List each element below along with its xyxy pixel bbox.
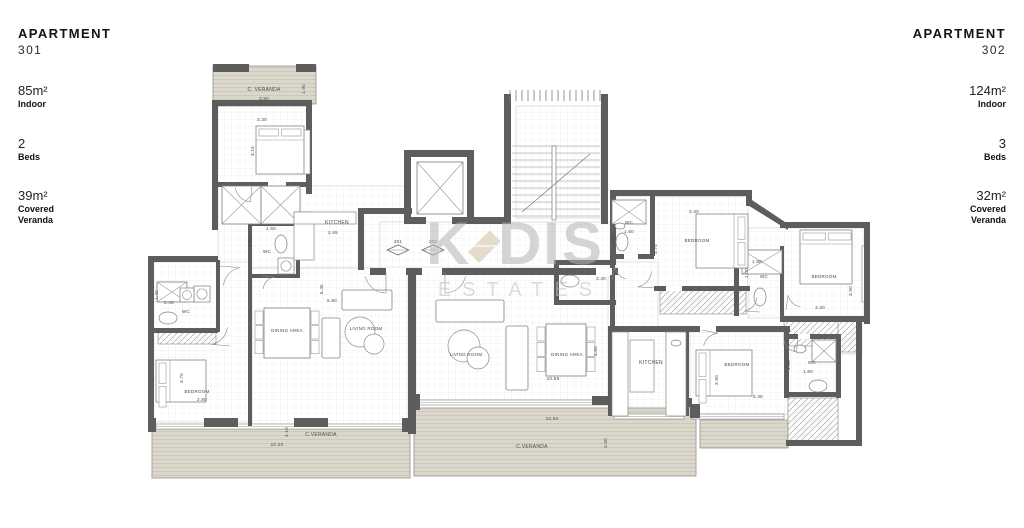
plan-label: 2.60 <box>247 237 252 247</box>
plan-label: 2.50 <box>611 235 616 245</box>
stat-label: Indoor <box>18 99 168 110</box>
stat-beds: 2 Beds <box>18 136 168 163</box>
chair <box>537 327 545 341</box>
counter <box>612 332 628 416</box>
plan-label: WC <box>625 220 633 225</box>
room-floor <box>612 262 658 328</box>
plan-label: 3.40 <box>596 276 606 281</box>
apartment-number: 302 <box>856 43 1006 57</box>
plan-label: C. VERANDA <box>247 87 280 93</box>
plan-label: 3.30 <box>815 305 825 310</box>
plan-label: 3.00 <box>603 438 608 448</box>
door-opening <box>596 268 612 275</box>
wc-fixture <box>671 340 681 346</box>
wall <box>294 418 328 427</box>
coffee-table <box>467 347 489 369</box>
plan-label: 1.60 <box>786 360 791 370</box>
chair <box>587 327 595 341</box>
bed-pillow <box>829 233 852 240</box>
dining-table <box>264 308 310 358</box>
plan-label: WC <box>182 309 190 314</box>
plan-label: 3.50 <box>593 346 598 356</box>
wardrobe <box>660 290 746 314</box>
stat-label: Beds <box>856 152 1006 163</box>
wall <box>404 150 474 157</box>
wall <box>467 150 474 224</box>
door-opening <box>386 268 406 275</box>
wall <box>212 100 218 230</box>
wall <box>554 300 616 305</box>
stat-value: 124m² <box>856 83 1006 98</box>
plan-label: KITCHEN <box>325 220 349 226</box>
plan-label: 1.40 <box>154 290 159 300</box>
plan-label: 10.50 <box>546 416 559 421</box>
wall <box>610 190 752 196</box>
door-opening <box>666 286 682 291</box>
plan-label: 4.10 <box>284 427 289 437</box>
wall <box>786 440 862 446</box>
counter <box>630 340 654 392</box>
wall <box>404 217 426 224</box>
plan-label: 1.80 <box>803 369 813 374</box>
plan-label: DINING AREA <box>551 352 583 357</box>
plan-label: WC <box>263 249 271 254</box>
wall <box>412 394 420 410</box>
wall <box>216 260 220 332</box>
apartment-number: 301 <box>18 43 168 57</box>
plan-label: BEDROOM <box>184 389 209 394</box>
chair <box>537 358 545 372</box>
plan-label: LIVING ROOM <box>350 326 383 331</box>
bed-pillow <box>699 353 706 377</box>
door-opening <box>422 268 442 275</box>
stat-value: 2 <box>18 136 168 151</box>
bed-pillow <box>282 129 302 136</box>
plan-label: 3.40 <box>689 209 699 214</box>
plan-label: C.VERANDA <box>305 432 337 438</box>
stat-label: Covered Veranda <box>18 204 168 225</box>
wall <box>554 260 559 304</box>
wc-fixture <box>754 288 766 306</box>
wc-fixture <box>561 275 579 287</box>
chair <box>255 340 263 353</box>
wall <box>554 260 616 265</box>
plan-label: 2.80 <box>197 397 207 402</box>
plan-label: BEDROOM <box>811 274 836 279</box>
chair <box>311 340 319 353</box>
plan-label: 1.50 <box>752 259 762 264</box>
plan-label: 5.35 <box>753 394 763 399</box>
plan-label: BEDROOM <box>724 362 749 367</box>
chair <box>587 358 595 372</box>
bed-pillow <box>738 217 745 240</box>
wall <box>690 404 700 418</box>
sofa <box>506 326 528 390</box>
wall <box>358 208 412 214</box>
floorplan-page: C. VERANDA3.901.903.303.15KITCHEN2.651.5… <box>0 0 1024 528</box>
chair <box>255 311 263 324</box>
plan-label: WC <box>760 274 768 279</box>
plan-label: 1.00 <box>744 268 749 278</box>
wc-fixture <box>616 233 628 251</box>
chair <box>255 326 263 339</box>
stat-value: 39m² <box>18 188 168 203</box>
veranda-deck <box>700 420 788 448</box>
wall <box>213 64 249 72</box>
wall <box>148 256 218 262</box>
plan-label: 10.55 <box>547 376 560 381</box>
bed-pillow <box>699 380 706 404</box>
wall <box>784 334 840 339</box>
stat-value: 3 <box>856 136 1006 151</box>
wall <box>836 334 841 398</box>
stat-value: 85m² <box>18 83 168 98</box>
sofa <box>322 318 340 358</box>
wc-fixture <box>809 380 827 392</box>
bed-pillow <box>159 387 166 408</box>
plan-label: 3.90 <box>259 96 269 101</box>
wall <box>370 268 618 275</box>
wall <box>472 217 506 224</box>
plan-label: 3.30 <box>257 117 267 122</box>
stat-label: Indoor <box>856 99 1006 110</box>
stat-indoor: 85m² Indoor <box>18 83 168 110</box>
stat-value: 32m² <box>856 188 1006 203</box>
plan-label: BEDROOM <box>684 238 709 243</box>
wall <box>864 222 870 324</box>
bed-pillow <box>159 363 166 384</box>
plan-label: 6.45 <box>319 284 324 294</box>
wardrobe <box>788 398 838 442</box>
stat-beds: 3 Beds <box>856 136 1006 163</box>
wall-diagonal <box>746 196 788 230</box>
plan-label: 2.40 <box>164 300 174 305</box>
wall <box>358 208 364 270</box>
plan-label: LIVING ROOM <box>450 352 483 357</box>
wall <box>784 392 840 397</box>
plan-label: DINING AREA <box>271 328 303 333</box>
wall <box>296 64 316 72</box>
appliance <box>180 288 194 302</box>
wall <box>248 278 252 426</box>
chair <box>537 342 545 356</box>
apartment-title: APARTMENT <box>18 26 168 41</box>
plan-label: 2.65 <box>328 230 338 235</box>
plan-label: 5.90 <box>327 298 337 303</box>
plan-label: 3.15 <box>250 146 255 156</box>
wall <box>148 418 156 432</box>
plan-label: WC <box>808 360 816 365</box>
wall <box>856 318 862 446</box>
appliance <box>278 258 294 274</box>
wc-fixture <box>275 235 287 253</box>
wall <box>452 217 474 224</box>
stat-label: Beds <box>18 152 168 163</box>
bed-pillow <box>738 243 745 266</box>
wall <box>248 222 252 278</box>
appliance <box>194 286 210 302</box>
apartment-302-panel: APARTMENT 302 124m² Indoor 3 Beds 32m² C… <box>856 26 1006 225</box>
bed-pillow <box>259 129 279 136</box>
dining-table <box>546 324 586 376</box>
plan-label: 301 <box>394 239 403 244</box>
plan-label: C.VERANDA <box>516 444 548 450</box>
door-opening <box>624 254 638 259</box>
apartment-301-panel: APARTMENT 301 85m² Indoor 2 Beds 39m² Co… <box>18 26 168 225</box>
wall <box>204 418 238 427</box>
plan-label: 3.90 <box>714 375 719 385</box>
plan-label: 302 <box>429 239 438 244</box>
coffee-table <box>364 334 384 354</box>
plan-label: 10.20 <box>271 442 284 447</box>
bed-pillow <box>803 233 826 240</box>
wall <box>402 418 414 432</box>
door-opening <box>798 334 810 339</box>
stat-label: Covered Veranda <box>856 204 1006 225</box>
sofa <box>436 300 504 322</box>
plan-label: 1.90 <box>301 84 306 94</box>
wall <box>601 94 608 224</box>
stat-veranda: 32m² Covered Veranda <box>856 188 1006 225</box>
stat-indoor: 124m² Indoor <box>856 83 1006 110</box>
wall <box>404 150 411 224</box>
plan-label: KITCHEN <box>639 360 663 366</box>
chair <box>311 326 319 339</box>
veranda-deck <box>152 428 410 478</box>
plan-label: 1.50 <box>266 226 276 231</box>
wall <box>504 94 511 224</box>
room-floor <box>516 106 601 218</box>
plan-label: 3.75 <box>179 373 184 383</box>
apartment-title: APARTMENT <box>856 26 1006 41</box>
chair <box>311 311 319 324</box>
wall <box>148 328 218 333</box>
plan-label: 1.60 <box>624 229 634 234</box>
wc-fixture <box>159 312 177 324</box>
stat-veranda: 39m² Covered Veranda <box>18 188 168 225</box>
plan-label: 3.90 <box>848 286 853 296</box>
wall <box>148 256 154 426</box>
plan-label: 3.70 <box>653 244 658 254</box>
